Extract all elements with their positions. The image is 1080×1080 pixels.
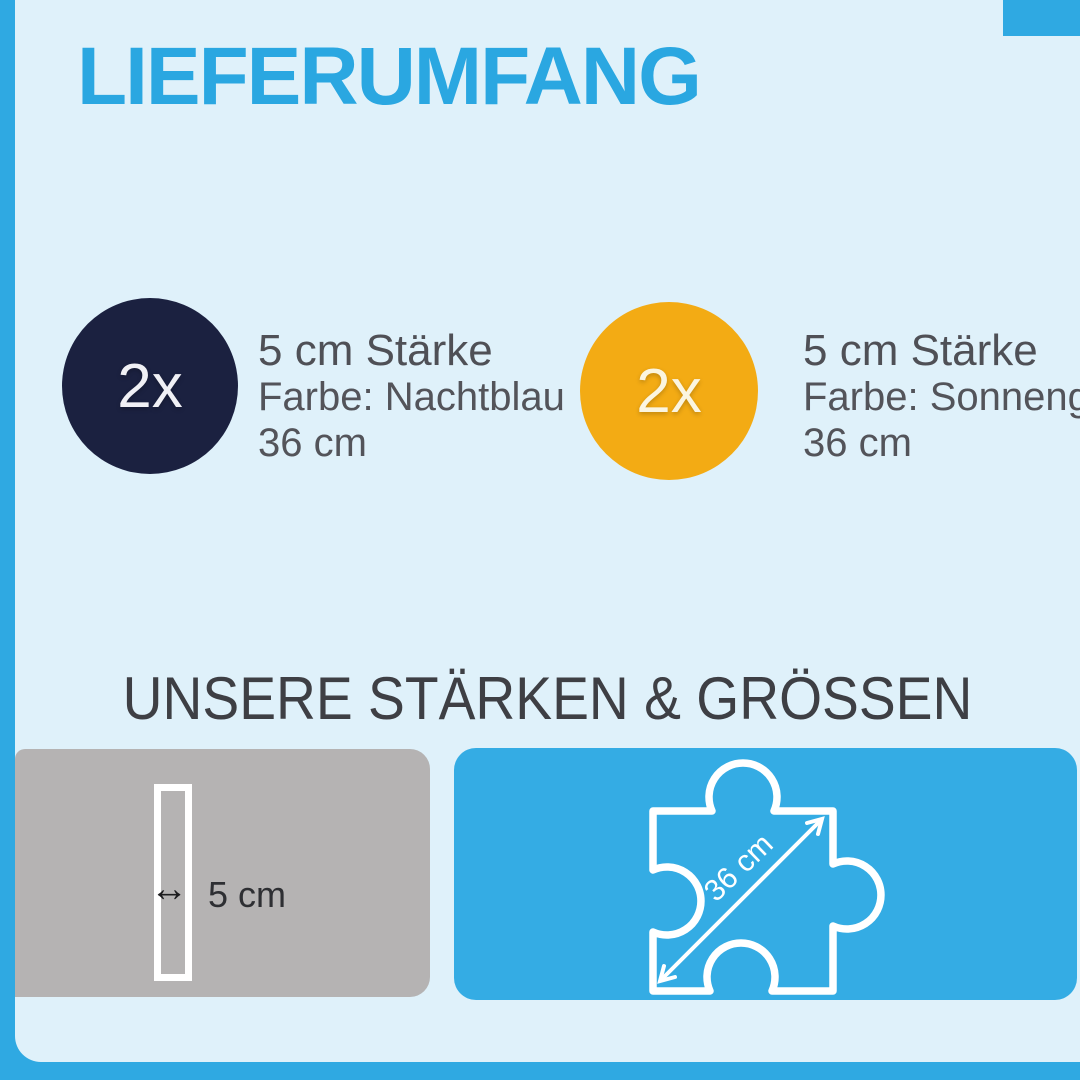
- thickness-panel: [15, 749, 430, 997]
- page-title: LIEFERUMFANG: [77, 30, 700, 124]
- item-thickness: 5 cm Stärke: [803, 327, 1080, 374]
- size-panel: 36 cm: [454, 748, 1077, 1000]
- content-area: LIEFERUMFANG 2x 5 cm Stärke Farbe: Nacht…: [15, 0, 1080, 1062]
- thickness-label: 5 cm: [208, 874, 286, 916]
- infographic-canvas: LIEFERUMFANG 2x 5 cm Stärke Farbe: Nacht…: [0, 0, 1080, 1080]
- item-color: Farbe: Sonnengelb: [803, 374, 1080, 420]
- quantity-badge: 2x: [117, 351, 182, 422]
- color-swatch-nachtblau: 2x: [62, 298, 238, 474]
- item-size: 36 cm: [258, 420, 565, 466]
- color-swatch-sonnengelb: 2x: [580, 302, 758, 480]
- horizontal-arrow-icon: ↔: [150, 870, 188, 908]
- quantity-badge: 2x: [636, 356, 701, 427]
- section-heading: UNSERE STÄRKEN & GRÖSSEN: [58, 664, 1038, 733]
- item-size: 36 cm: [803, 420, 1080, 466]
- item-color: Farbe: Nachtblau: [258, 374, 565, 420]
- item-description-nachtblau: 5 cm Stärke Farbe: Nachtblau 36 cm: [258, 327, 565, 466]
- item-description-sonnengelb: 5 cm Stärke Farbe: Sonnengelb 36 cm: [803, 327, 1080, 466]
- puzzle-outline: [653, 763, 881, 991]
- diagonal-size-label: 36 cm: [698, 828, 780, 908]
- corner-accent: [1003, 0, 1080, 36]
- puzzle-piece-icon: 36 cm: [618, 759, 888, 1004]
- item-thickness: 5 cm Stärke: [258, 327, 565, 374]
